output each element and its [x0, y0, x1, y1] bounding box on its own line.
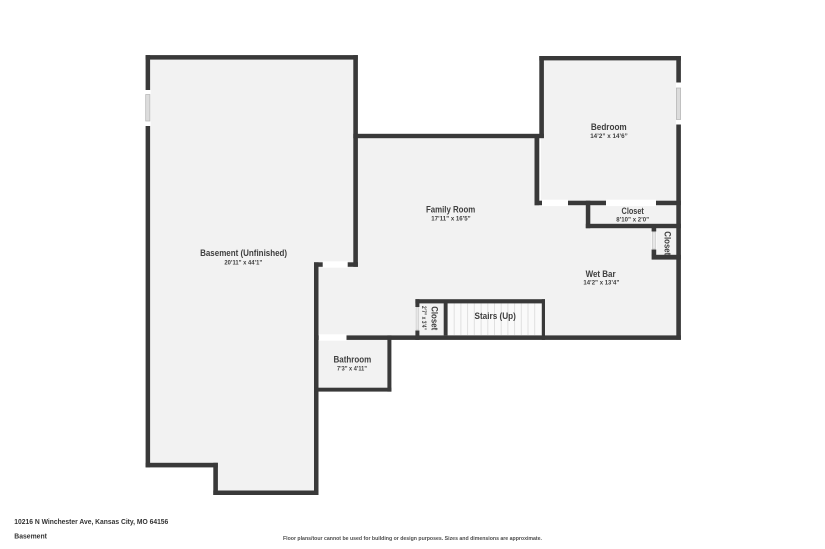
svg-text:10216 N Winchester Ave, Kansas: 10216 N Winchester Ave, Kansas City, MO …: [14, 517, 168, 526]
svg-text:Basement: Basement: [14, 532, 47, 541]
svg-text:Bathroom: Bathroom: [334, 354, 372, 364]
svg-text:Floor plans/tour cannot be use: Floor plans/tour cannot be used for buil…: [283, 536, 543, 542]
svg-text:8’10” x 2’0”: 8’10” x 2’0”: [616, 216, 649, 223]
svg-text:2’7” x 3’4”: 2’7” x 3’4”: [420, 306, 427, 330]
svg-text:Closet: Closet: [622, 206, 644, 216]
svg-text:Basement (Unfinished): Basement (Unfinished): [200, 248, 287, 258]
svg-text:14’2” x 14’6”: 14’2” x 14’6”: [590, 133, 628, 140]
svg-text:17’11” x 16’5”: 17’11” x 16’5”: [431, 216, 470, 223]
svg-text:7’3” x 4’11”: 7’3” x 4’11”: [337, 365, 367, 372]
svg-text:Family Room: Family Room: [426, 204, 475, 214]
svg-text:Closet: Closet: [662, 231, 672, 255]
svg-text:Closet: Closet: [429, 306, 439, 330]
svg-text:Bedroom: Bedroom: [591, 122, 627, 132]
svg-text:Stairs (Up): Stairs (Up): [475, 311, 516, 321]
svg-text:Wet Bar: Wet Bar: [586, 269, 616, 279]
svg-text:14’2” x 13’4”: 14’2” x 13’4”: [583, 280, 619, 287]
svg-text:20’11” x 44’1”: 20’11” x 44’1”: [224, 259, 262, 266]
